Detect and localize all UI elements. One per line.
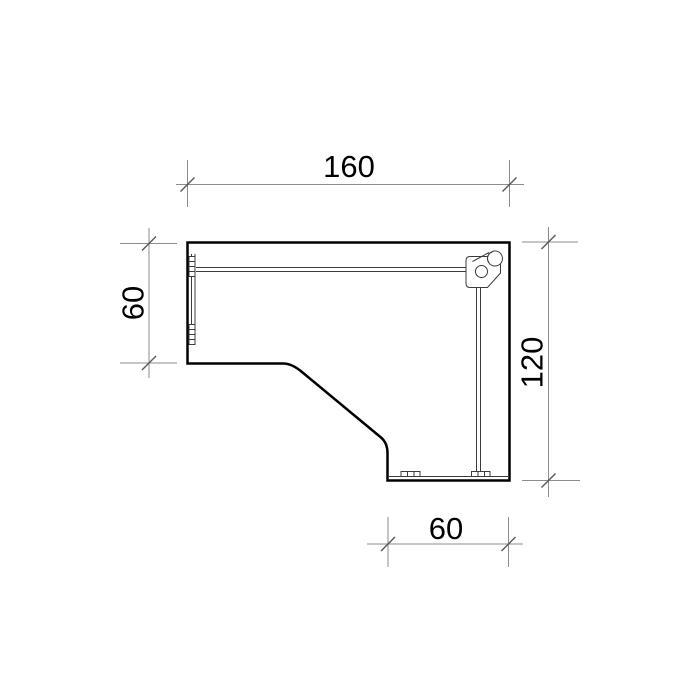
dowel-circle-icon <box>476 266 488 278</box>
dimension-bottom: 60 <box>367 511 523 567</box>
desk-top-surface <box>188 243 510 481</box>
technical-drawing-canvas: 160 60 120 <box>0 0 700 700</box>
cam-lock-icon <box>487 251 502 266</box>
desk-plan-drawing: 160 60 120 <box>0 0 700 700</box>
dimension-top: 160 <box>176 149 524 207</box>
dimension-left-value: 60 <box>116 286 151 320</box>
desk-outline <box>188 243 510 481</box>
dimension-right-value: 120 <box>515 337 550 389</box>
hinge-bracket-top <box>189 257 195 277</box>
hinge-bracket-bottom <box>189 325 195 345</box>
dimension-bottom-value: 60 <box>429 511 463 546</box>
dimension-right: 120 <box>515 227 581 497</box>
dimension-left: 60 <box>116 228 178 378</box>
dimension-top-value: 160 <box>323 149 375 184</box>
